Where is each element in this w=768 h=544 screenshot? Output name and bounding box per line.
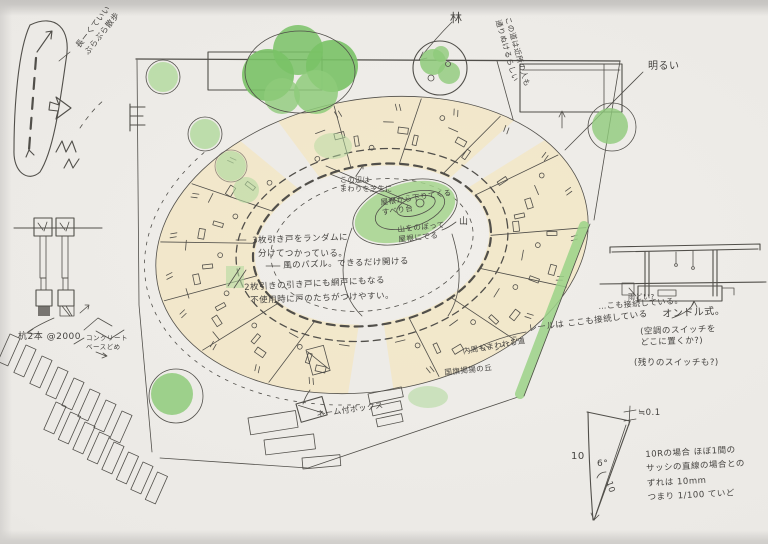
- posts-note: 杭2本 @2000: [18, 331, 81, 343]
- tree: [146, 60, 180, 94]
- tree-cluster: [242, 25, 358, 114]
- direction-arrow-icon: [49, 97, 145, 168]
- forest-tree: [413, 41, 467, 95]
- slope-note: 10Rの場合 ほぼ1間の サッシの直線の場合との ずれは 10mm つまり 1/…: [645, 443, 747, 506]
- louver-hatch-rows: [0, 334, 168, 504]
- switch-note: (空調のスイッチを どこに置くか?): [640, 324, 717, 350]
- forest-label: 林: [450, 10, 463, 26]
- promenade-oval: [14, 21, 70, 176]
- switch-note-2: (残りのスイッチも?): [634, 358, 719, 369]
- sketch-canvas: 長ーくていい ぶらぶら散歩 林 この道は近所の人も 通りぬけるらしい 明るい こ…: [0, 0, 768, 544]
- slope-angle-label: 6°: [597, 458, 608, 470]
- slope-offset-label: ≒0.1: [638, 408, 661, 419]
- grass-patch: [314, 133, 352, 159]
- tree: [149, 369, 203, 423]
- door-hatch-sketch: [226, 266, 246, 288]
- area-note: この辺は まわりを芝生に: [340, 176, 393, 195]
- ring-building: [121, 63, 614, 437]
- bright-label: 明るい: [648, 60, 680, 74]
- grass-patch: [408, 386, 448, 408]
- tree: [188, 117, 222, 151]
- hill-label: 山: [459, 216, 469, 228]
- concrete-note: コンクリート ベースどめ: [86, 334, 128, 352]
- slope-wedge-diagram: [587, 406, 636, 520]
- slope-height-label: 10: [571, 450, 585, 464]
- tree: [588, 103, 636, 151]
- gutter-label: 雨どい?: [628, 293, 655, 302]
